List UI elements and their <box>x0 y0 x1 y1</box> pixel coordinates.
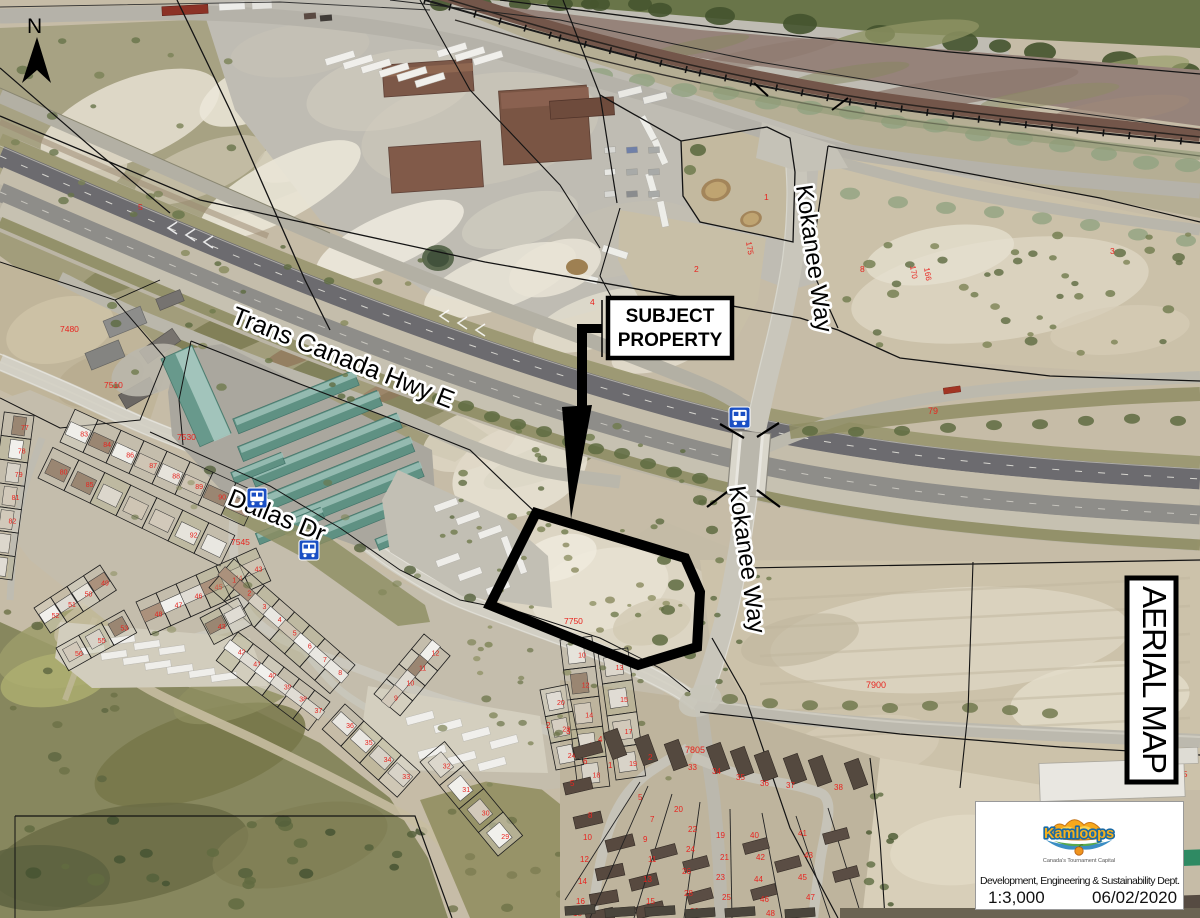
svg-text:6: 6 <box>583 757 588 766</box>
svg-text:47: 47 <box>806 893 815 902</box>
svg-text:29: 29 <box>501 834 509 841</box>
svg-text:53: 53 <box>120 626 128 633</box>
svg-text:11: 11 <box>648 855 657 864</box>
svg-text:43: 43 <box>218 624 226 631</box>
svg-text:7510: 7510 <box>104 380 123 390</box>
svg-text:10: 10 <box>578 652 586 659</box>
svg-text:31: 31 <box>462 787 470 794</box>
svg-text:7545: 7545 <box>231 537 250 547</box>
svg-text:34: 34 <box>712 767 721 776</box>
svg-text:SUBJECT: SUBJECT <box>626 306 715 327</box>
svg-text:26: 26 <box>682 867 691 876</box>
svg-text:81: 81 <box>12 495 20 502</box>
svg-text:18: 18 <box>593 772 601 779</box>
svg-text:88: 88 <box>172 474 180 481</box>
svg-text:2: 2 <box>648 753 653 762</box>
svg-text:33: 33 <box>688 763 697 772</box>
svg-text:06/02/2020: 06/02/2020 <box>1092 888 1177 907</box>
svg-text:30: 30 <box>482 811 490 818</box>
svg-text:48: 48 <box>766 909 775 918</box>
svg-text:12: 12 <box>580 855 589 864</box>
svg-text:10: 10 <box>407 680 415 687</box>
svg-text:50: 50 <box>85 591 93 598</box>
svg-text:2: 2 <box>546 721 551 730</box>
svg-text:5: 5 <box>570 779 575 788</box>
svg-text:44: 44 <box>754 875 763 884</box>
svg-text:4: 4 <box>278 617 282 624</box>
svg-text:9: 9 <box>394 695 398 702</box>
svg-text:33: 33 <box>402 774 410 781</box>
svg-text:Development, Engineering & Sus: Development, Engineering & Sustainabilit… <box>980 875 1180 887</box>
svg-text:25: 25 <box>722 893 731 902</box>
svg-text:4: 4 <box>590 297 595 307</box>
svg-text:46: 46 <box>195 593 203 600</box>
svg-text:10: 10 <box>583 833 592 842</box>
svg-text:19: 19 <box>629 761 637 768</box>
svg-text:AERIAL MAP: AERIAL MAP <box>1136 586 1173 774</box>
svg-text:35: 35 <box>365 740 373 747</box>
svg-text:17: 17 <box>625 729 633 736</box>
svg-text:5: 5 <box>638 793 643 802</box>
svg-text:15: 15 <box>620 697 628 704</box>
svg-text:16: 16 <box>576 897 585 906</box>
svg-text:87: 87 <box>149 463 157 470</box>
svg-text:40: 40 <box>750 831 759 840</box>
svg-text:85: 85 <box>86 482 94 489</box>
svg-text:52: 52 <box>52 613 60 620</box>
svg-text:13: 13 <box>616 665 624 672</box>
svg-text:46: 46 <box>760 895 769 904</box>
svg-text:4: 4 <box>598 735 603 744</box>
svg-text:1: 1 <box>764 192 769 202</box>
svg-text:19: 19 <box>716 831 725 840</box>
svg-text:Kamloops: Kamloops <box>1044 826 1114 842</box>
svg-text:92: 92 <box>190 532 198 539</box>
svg-text:15: 15 <box>646 897 655 906</box>
svg-text:56: 56 <box>75 651 83 658</box>
svg-text:79: 79 <box>15 472 23 479</box>
svg-text:Canada’s Tournament Capital: Canada’s Tournament Capital <box>1043 858 1115 864</box>
svg-text:20: 20 <box>557 700 565 707</box>
svg-text:9: 9 <box>643 835 648 844</box>
svg-text:77: 77 <box>21 425 29 432</box>
svg-text:7480: 7480 <box>60 324 79 334</box>
svg-text:14: 14 <box>578 877 587 886</box>
svg-text:1:3,000: 1:3,000 <box>988 888 1045 907</box>
svg-text:23: 23 <box>716 873 725 882</box>
svg-text:90: 90 <box>218 495 226 502</box>
svg-text:83: 83 <box>80 432 88 439</box>
svg-text:82: 82 <box>9 519 17 526</box>
svg-text:43: 43 <box>255 566 263 573</box>
svg-text:42: 42 <box>756 853 765 862</box>
svg-text:1: 1 <box>232 578 236 585</box>
svg-text:3: 3 <box>1110 246 1115 256</box>
svg-text:5: 5 <box>293 631 297 638</box>
svg-text:2: 2 <box>247 591 251 598</box>
svg-text:84: 84 <box>103 442 111 449</box>
svg-text:35: 35 <box>736 773 745 782</box>
svg-text:45: 45 <box>798 873 807 882</box>
svg-text:20: 20 <box>674 805 683 814</box>
svg-text:55: 55 <box>98 638 106 645</box>
svg-text:N: N <box>27 15 42 38</box>
svg-text:79: 79 <box>928 406 938 416</box>
svg-text:5: 5 <box>138 202 143 212</box>
svg-text:8: 8 <box>588 811 593 820</box>
svg-text:8: 8 <box>338 670 342 677</box>
svg-text:21: 21 <box>720 853 729 862</box>
svg-text:2: 2 <box>694 264 699 274</box>
svg-text:28: 28 <box>684 889 693 898</box>
svg-text:7: 7 <box>650 815 655 824</box>
svg-text:38: 38 <box>834 783 843 792</box>
svg-text:37: 37 <box>315 708 323 715</box>
svg-text:86: 86 <box>126 453 134 460</box>
svg-text:7530: 7530 <box>177 432 196 442</box>
svg-text:1: 1 <box>608 761 613 770</box>
svg-text:36: 36 <box>346 723 354 730</box>
svg-text:24: 24 <box>686 845 695 854</box>
svg-text:34: 34 <box>384 757 392 764</box>
svg-text:47: 47 <box>175 602 183 609</box>
svg-text:13: 13 <box>643 875 652 884</box>
svg-text:48: 48 <box>155 611 163 618</box>
svg-text:12: 12 <box>432 650 440 657</box>
svg-text:49: 49 <box>101 581 109 588</box>
svg-text:6: 6 <box>308 644 312 651</box>
svg-text:7805: 7805 <box>685 745 705 755</box>
svg-text:51: 51 <box>68 602 76 609</box>
svg-text:14: 14 <box>585 712 593 719</box>
svg-text:12: 12 <box>582 682 590 689</box>
svg-text:41: 41 <box>798 829 807 838</box>
svg-text:7900: 7900 <box>866 680 886 690</box>
svg-text:80: 80 <box>60 470 68 477</box>
svg-text:32: 32 <box>443 764 451 771</box>
svg-text:3: 3 <box>566 727 571 736</box>
svg-text:89: 89 <box>195 484 203 491</box>
svg-text:22: 22 <box>688 825 697 834</box>
svg-text:36: 36 <box>760 779 769 788</box>
svg-text:3: 3 <box>263 604 267 611</box>
svg-text:8: 8 <box>860 264 865 274</box>
svg-text:78: 78 <box>18 448 26 455</box>
svg-text:PROPERTY: PROPERTY <box>618 330 723 351</box>
svg-text:37: 37 <box>786 781 795 790</box>
svg-text:43: 43 <box>804 851 813 860</box>
svg-text:7750: 7750 <box>564 616 583 626</box>
svg-text:7: 7 <box>323 657 327 664</box>
svg-text:11: 11 <box>419 665 426 672</box>
